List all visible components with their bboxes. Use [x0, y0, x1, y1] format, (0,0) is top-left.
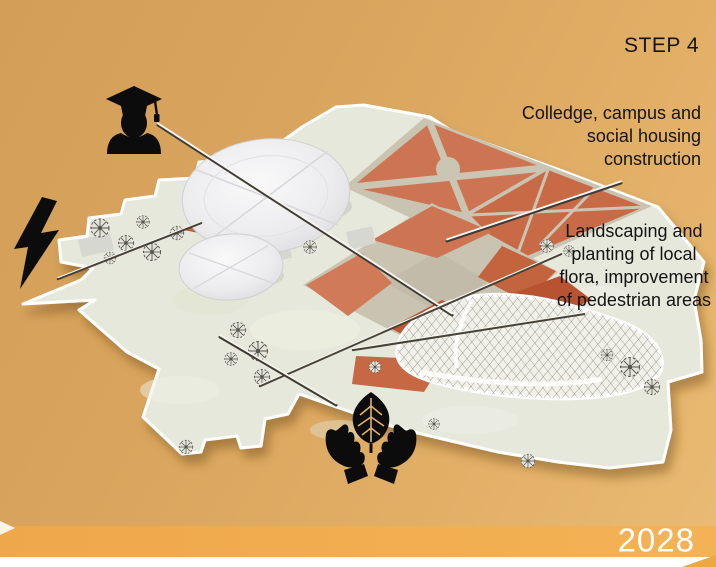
timeline-ribbon: 2028: [0, 526, 716, 557]
college-annotation: Colledge, campus and social housing cons…: [522, 102, 701, 171]
hands-leaf-icon: [320, 390, 422, 488]
masterplan-step-slide: STEP 4 Colledge, campus and social housi…: [0, 0, 716, 567]
landscaping-annotation: Landscaping and planting of local flora,…: [557, 220, 711, 312]
year-label: 2028: [618, 521, 695, 559]
bolt-shape: [14, 197, 59, 289]
step-label: STEP 4: [624, 34, 699, 58]
head: [121, 108, 147, 138]
tassel-knob: [154, 114, 160, 122]
lightning-icon: [14, 197, 64, 289]
graduate-icon: [100, 80, 168, 154]
tassel: [155, 101, 157, 115]
bottom-strip: [0, 557, 716, 567]
